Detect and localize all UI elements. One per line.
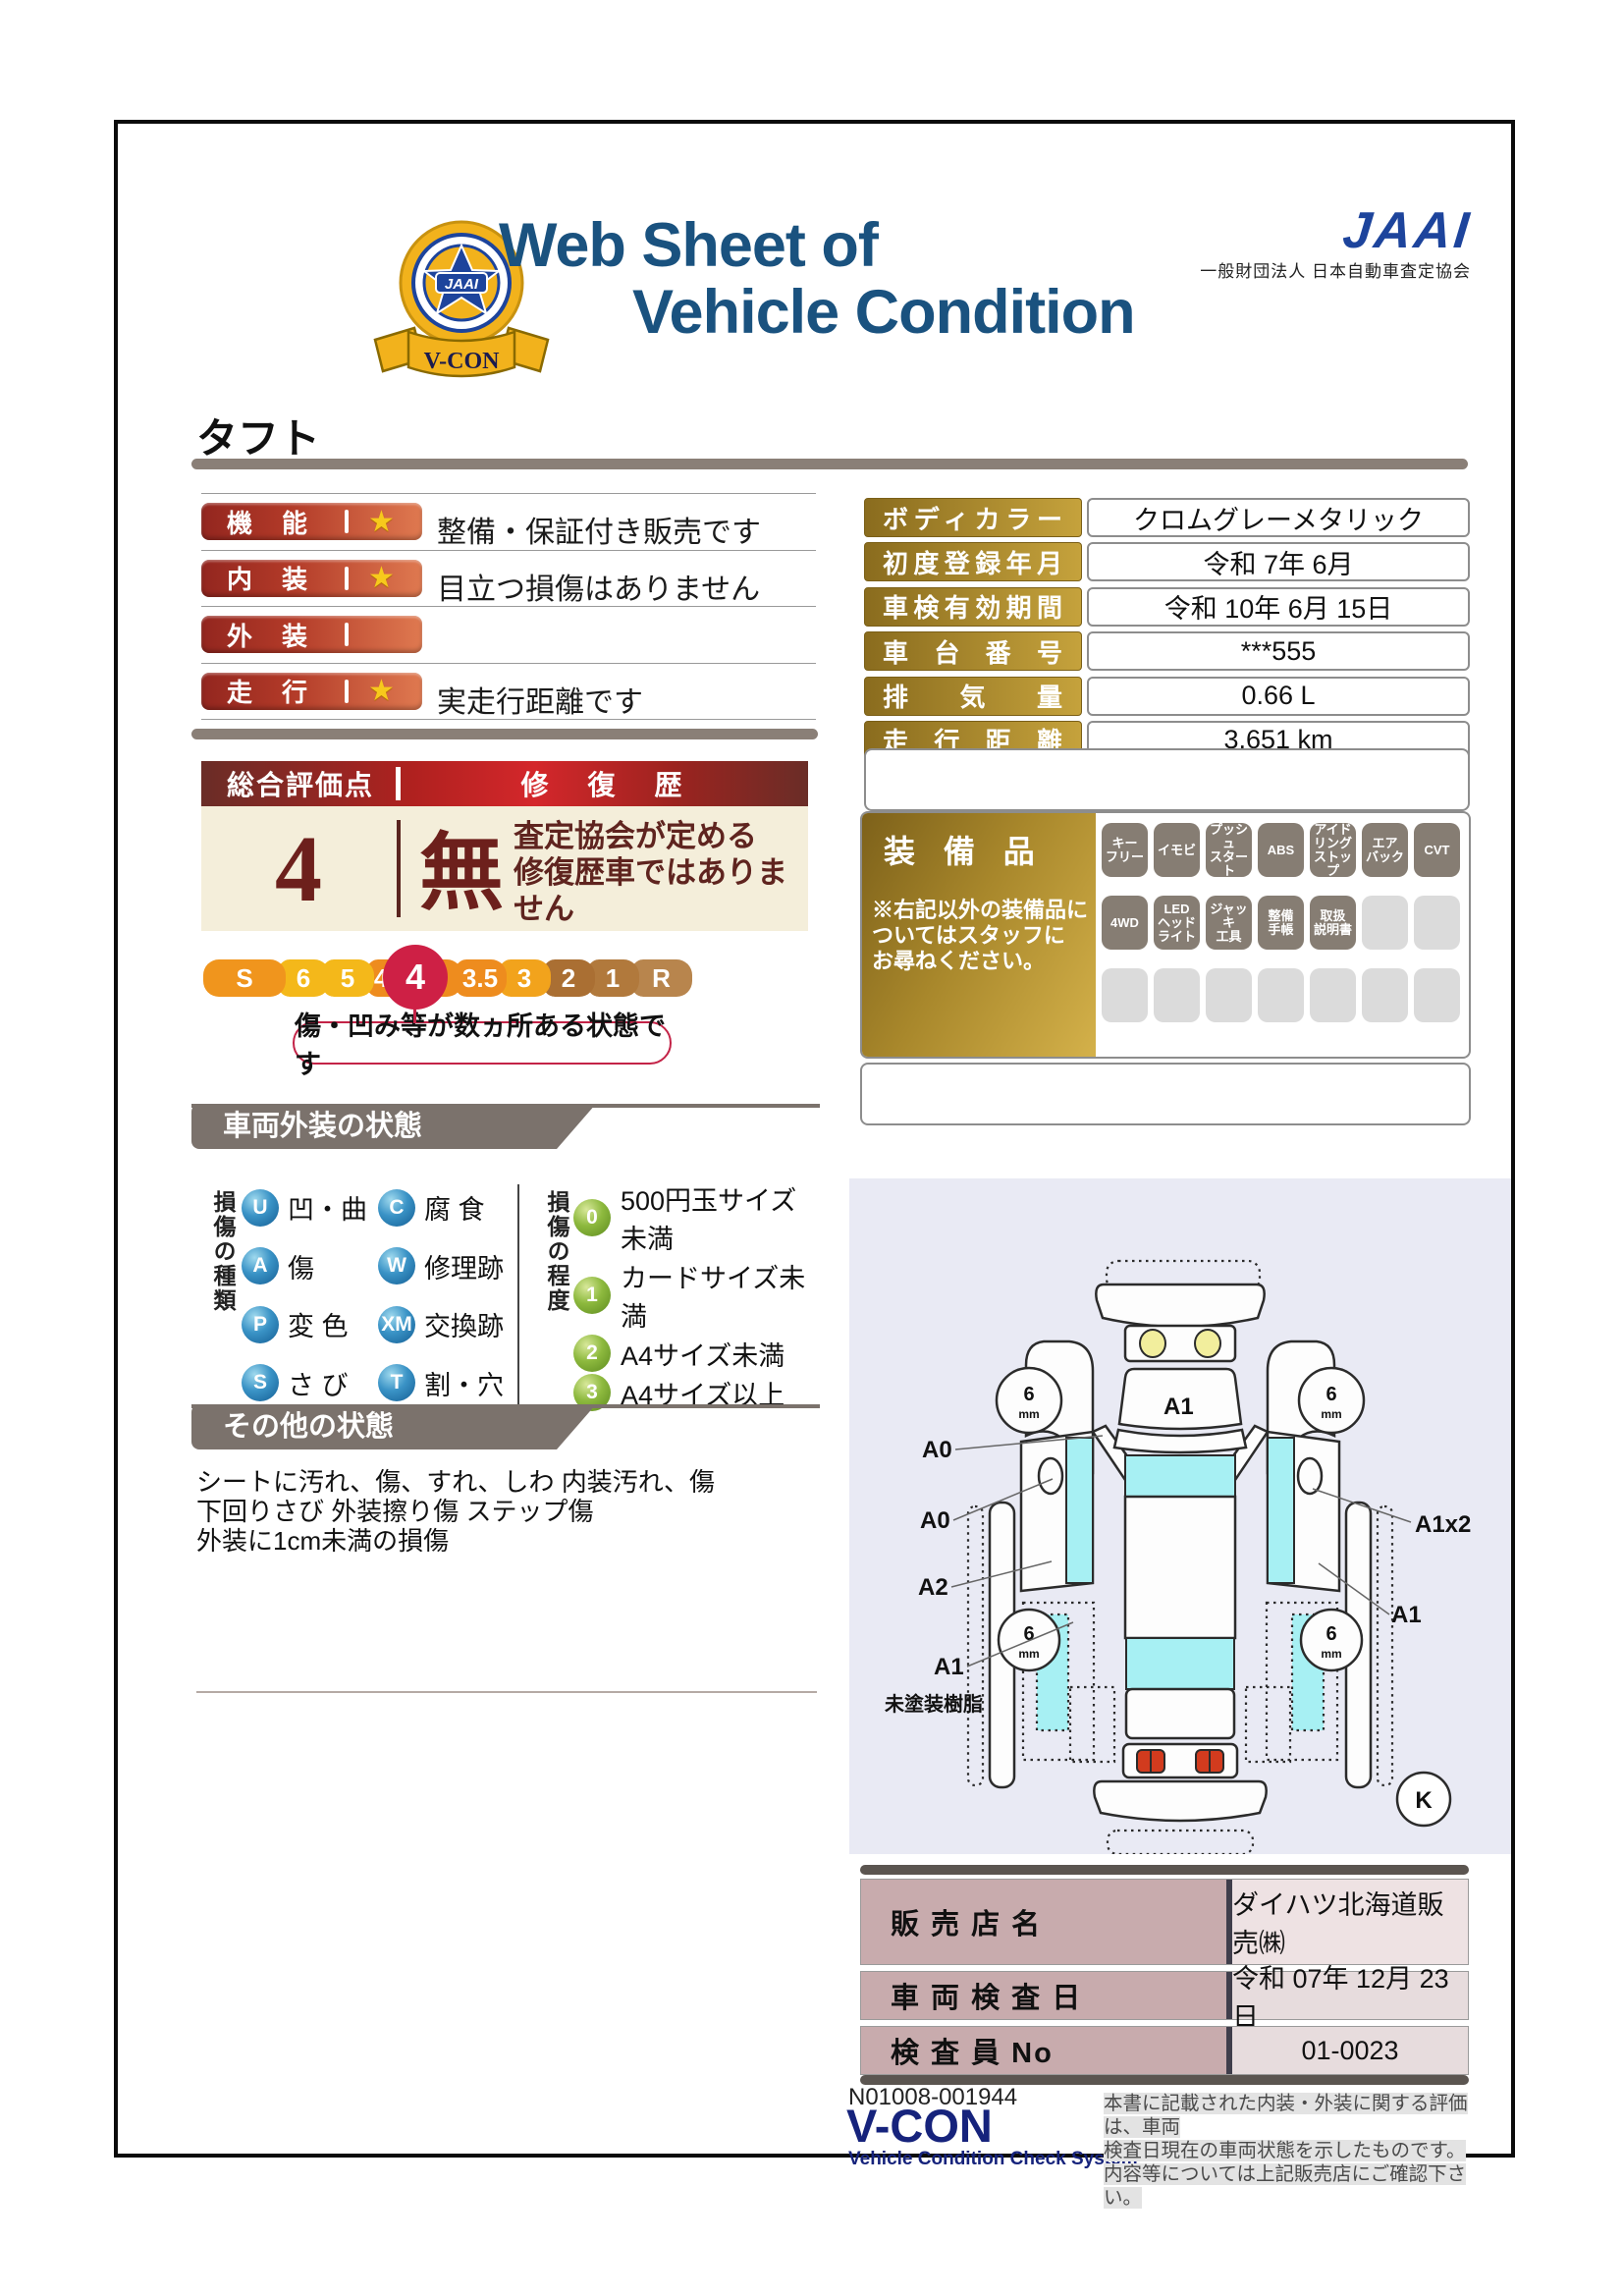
right-quarter-outline [1246, 1687, 1290, 1762]
equipment-badge: 4WD [1102, 896, 1148, 950]
equipment-badge: ジャッキ 工具 [1206, 896, 1252, 950]
rating-row: 内 装 ★ 目立つ損傷はありません [201, 550, 816, 607]
damage-label-a1-left: A1 [934, 1654, 964, 1680]
legend-item: 0 500円玉サイズ未満 [573, 1179, 819, 1256]
rating-row: 機 能 ★ 整備・保証付き販売です [201, 493, 816, 550]
right-mirror [1298, 1458, 1322, 1494]
score-header: 総合評価点 修 復 歴 [201, 761, 808, 806]
rating-note: 実走行距離です [437, 678, 643, 721]
detail-value: クロムグレーメタリック [1087, 498, 1470, 537]
other-condition-line: 外装に1cm未満の損傷 [196, 1526, 715, 1556]
rear-bumper [1094, 1781, 1266, 1821]
vcon-logo: V-CON [846, 2104, 993, 2149]
damage-code-label: 腐 食 [424, 1188, 485, 1227]
score-header-left: 総合評価点 [227, 764, 392, 803]
star-icon: ★ [368, 674, 395, 708]
equipment-badge [1362, 968, 1408, 1022]
scale-callout: 傷・凹み等が数ヵ所ある状態です [293, 1021, 672, 1065]
left-outer-sill [968, 1506, 983, 1785]
title-line1: Web Sheet of [499, 212, 1135, 279]
repair-mark: 無 [419, 824, 504, 922]
overall-score: 4 [201, 806, 396, 931]
svg-text:K: K [1415, 1787, 1433, 1814]
damage-code-icon: XM [378, 1306, 415, 1343]
front-left-wheel: 6 mm [997, 1368, 1061, 1433]
dealer-value: ダイハツ北海道販売㈱ [1232, 1880, 1468, 1964]
dealer-table-top-bar [860, 1865, 1469, 1875]
equipment-badge: プッシュ スタート [1206, 823, 1252, 877]
equipment-badge: イモビ [1154, 823, 1200, 877]
equipment-badge: キー フリー [1102, 823, 1148, 877]
damage-code-icon: W [378, 1247, 415, 1285]
right-pillar-glass [1268, 1438, 1294, 1583]
empty-field [860, 1063, 1471, 1125]
equipment-badge: CVT [1414, 823, 1460, 877]
damage-code-icon: U [242, 1189, 279, 1227]
front-bumper [1096, 1285, 1264, 1327]
rating-bar: 内 装 ★ [201, 560, 422, 597]
table-row: 販 売 店 名 ダイハツ北海道販売㈱ [860, 1879, 1469, 1965]
vehicle-details-table: ボディカラー クロムグレーメタリック 初度登録年月 令和 7年 6月 車検有効期… [864, 498, 1470, 760]
equipment-title: 装 備 品 [884, 827, 1096, 872]
svg-text:6: 6 [1325, 1623, 1336, 1645]
rating-divider [345, 680, 349, 703]
svg-text:mm: mm [1018, 1647, 1039, 1661]
degree-code-label: A4サイズ未満 [621, 1335, 784, 1373]
rear-panel [1126, 1689, 1234, 1738]
rear-right-wheel: 6 mm [1301, 1610, 1362, 1670]
table-row: 車検有効期間 令和 10年 6月 15日 [864, 587, 1470, 627]
badge-ribbon-text: V-CON [424, 349, 501, 374]
footer-note: 本書に記載された内装・外装に関する評価は、車両検査日現在の車両状態を示したもので… [1104, 2092, 1477, 2210]
star-icon: ★ [368, 561, 395, 595]
legend-item: W 修理跡 [378, 1237, 514, 1296]
legend-item: U 凹・曲 [242, 1178, 378, 1237]
detail-value: 令和 10年 6月 15日 [1087, 587, 1470, 627]
detail-label: 車検有効期間 [864, 587, 1082, 627]
damage-code-label: 割・穴 [424, 1364, 504, 1402]
repair-history: 無 査定協会が定める 修復歴車ではありません [419, 818, 808, 927]
damage-code-label: 凹・曲 [288, 1188, 367, 1227]
front-right-wheel: 6 mm [1299, 1368, 1364, 1433]
score-divider [397, 820, 401, 917]
rating-divider [345, 623, 349, 646]
dealer-value: 令和 07年 12月 23日 [1232, 1972, 1468, 2019]
vehicle-name: タフト [196, 406, 320, 465]
equipment-badge [1206, 968, 1252, 1022]
rating-label: 外 装 [227, 617, 327, 653]
windshield [1125, 1455, 1235, 1497]
table-row: 車 両 検 査 日 令和 07年 12月 23日 [860, 1971, 1469, 2020]
degree-code-icon: 2 [573, 1335, 611, 1372]
equipment-badge: 整備 手帳 [1258, 896, 1304, 950]
headlight-right-icon [1195, 1330, 1220, 1357]
scale-selected-score: 4 [383, 945, 448, 1010]
equipment-badge: ABS [1258, 823, 1304, 877]
vehicle-condition-sheet: JAAI V-CON Web Sheet of Vehicle Conditio… [0, 0, 1623, 2296]
hood-damage-label: A1 [1163, 1394, 1194, 1420]
damage-label-a1x2: A1x2 [1415, 1511, 1471, 1538]
scale-item: S [203, 959, 286, 997]
repair-note-line1: 査定協会が定める [514, 819, 757, 853]
rating-note: 整備・保証付き販売です [437, 508, 761, 551]
detail-value: ***555 [1087, 631, 1470, 671]
footer-note-line: 内容等については上記販売店にご確認下さい。 [1104, 2162, 1477, 2210]
left-pillar-glass [1066, 1438, 1093, 1583]
damage-degree-legend: 0 500円玉サイズ未満 1 カードサイズ未満 2 A4サイズ未満 3 A4サイ… [573, 1178, 819, 1412]
detail-label: 車 台 番 号 [864, 631, 1082, 671]
damage-kind-title: 損傷の種類 [206, 1190, 240, 1410]
inspection-corner-mark: K [1397, 1773, 1450, 1826]
damage-code-icon: A [242, 1247, 279, 1285]
rating-label: 走 行 [227, 673, 327, 709]
score-header-right: 修 復 歴 [401, 764, 808, 803]
detail-value: 0.66 L [1087, 677, 1470, 716]
legend-item: C 腐 食 [378, 1178, 514, 1237]
damage-label-a1-right: A1 [1391, 1602, 1422, 1628]
equipment-badge: 取扱 説明書 [1310, 896, 1356, 950]
table-row: 車 台 番 号 ***555 [864, 631, 1470, 671]
rating-bar: 走 行 ★ [201, 673, 422, 710]
exterior-section-banner: 車両外装の状態 [191, 1104, 596, 1149]
right-outer-sill [1378, 1506, 1392, 1785]
cowl [1114, 1430, 1246, 1452]
table-row: 検 査 員 No 01-0023 [860, 2026, 1469, 2075]
damage-code-label: 変 色 [288, 1305, 349, 1343]
equipment-box: 装 備 品 ※右記以外の装備品に ついてはスタッフに お尋ねください。 キー フ… [860, 811, 1471, 1059]
footer-note-line: 検査日現在の車両状態を示したものです。 [1104, 2139, 1477, 2162]
dealer-label: 販 売 店 名 [861, 1880, 1226, 1964]
jaai-logo: JAAI [1340, 206, 1474, 255]
rating-divider [345, 567, 349, 590]
empty-field [864, 748, 1470, 811]
detail-label: ボディカラー [864, 498, 1082, 537]
equipment-badge [1154, 968, 1200, 1022]
score-scale: S 6 5 4.5 4 3.5 3 2 1 R [203, 959, 692, 997]
roof [1125, 1497, 1235, 1638]
score-body: 4 無 査定協会が定める 修復歴車ではありません [201, 806, 808, 931]
rating-label: 機 能 [227, 504, 327, 540]
rating-row: 外 装 [201, 606, 816, 663]
scale-callout-stem [413, 1008, 416, 1023]
damage-code-label: 傷 [288, 1247, 314, 1285]
damage-kind-legend: U 凹・曲 C 腐 食 A 傷 W 修理跡 P 変 色 [242, 1178, 514, 1412]
jaai-organization: 一般財団法人 日本自動車査定協会 [1129, 257, 1471, 282]
rear-window [1126, 1638, 1234, 1689]
rating-note: 目立つ損傷はありません [437, 565, 760, 608]
svg-text:6: 6 [1325, 1384, 1336, 1405]
legend-divider [517, 1184, 519, 1404]
legend-item: P 変 色 [242, 1295, 378, 1354]
equipment-badge [1258, 968, 1304, 1022]
equipment-badge [1414, 896, 1460, 950]
equipment-badge [1310, 968, 1356, 1022]
rear-bumper-outline [1108, 1831, 1253, 1854]
headlight-left-icon [1140, 1330, 1165, 1357]
left-mirror [1039, 1458, 1062, 1494]
star-icon: ★ [368, 505, 395, 539]
damage-label-a0-1: A0 [922, 1437, 952, 1463]
damage-code-icon: S [242, 1364, 279, 1401]
repair-note-line2: 修復歴車ではありません [514, 855, 787, 926]
unpainted-resin-label: 未塗装樹脂 [885, 1692, 983, 1716]
equipment-badge-grid: キー フリー イモビ プッシュ スタート ABS アイド リング ストップ エア… [1102, 823, 1465, 1022]
legend-item: 1 カードサイズ未満 [573, 1257, 819, 1334]
degree-code-label: カードサイズ未満 [621, 1257, 819, 1334]
left-quarter-outline [1070, 1687, 1114, 1762]
equipment-badge: エア バック [1362, 823, 1408, 877]
degree-code-label: 500円玉サイズ未満 [621, 1179, 819, 1256]
degree-code-icon: 0 [573, 1199, 611, 1236]
legend-item: A 傷 [242, 1237, 378, 1296]
badge-jaai-text: JAAI [445, 276, 479, 293]
equipment-badge: LED ヘッド ライト [1154, 896, 1200, 950]
rating-bar: 機 能 ★ [201, 503, 422, 540]
detail-value: 令和 7年 6月 [1087, 542, 1470, 581]
car-damage-diagram: 6 mm 6 mm 6 mm 6 mm A1 A0 A0 A2 A1 未塗装樹脂… [849, 1178, 1511, 1854]
detail-label: 初度登録年月 [864, 542, 1082, 581]
table-row: 排 気 量 0.66 L [864, 677, 1470, 716]
damage-code-icon: P [242, 1306, 279, 1343]
divider-line [196, 1691, 817, 1693]
damage-code-icon: C [378, 1189, 415, 1227]
legend-item: XM 交換跡 [378, 1295, 514, 1354]
damage-code-label: 交換跡 [424, 1305, 504, 1343]
equipment-badge [1414, 968, 1460, 1022]
other-condition-text: シートに汚れ、傷、すれ、しわ 内装汚れ、傷下回りさび 外装擦り傷 ステップ傷外装… [196, 1467, 715, 1556]
detail-label: 排 気 量 [864, 677, 1082, 716]
damage-label-a2: A2 [918, 1574, 948, 1601]
dealer-label: 検 査 員 No [861, 2027, 1226, 2074]
other-condition-line: 下回りさび 外装擦り傷 ステップ傷 [196, 1497, 715, 1526]
damage-label-a0-2: A0 [920, 1507, 950, 1534]
rating-label: 内 装 [227, 560, 327, 596]
equipment-badge [1102, 968, 1148, 1022]
degree-code-icon: 1 [573, 1277, 611, 1314]
equipment-note: ※右記以外の装備品に ついてはスタッフに お尋ねください。 [872, 898, 1096, 974]
svg-text:mm: mm [1018, 1407, 1039, 1421]
damage-code-label: さ び [288, 1364, 349, 1402]
rating-bar: 外 装 [201, 616, 422, 653]
divider [191, 459, 1468, 469]
dealer-value: 01-0023 [1232, 2027, 1468, 2074]
equipment-panel: 装 備 品 ※右記以外の装備品に ついてはスタッフに お尋ねください。 [862, 813, 1096, 1057]
svg-text:6: 6 [1023, 1384, 1034, 1405]
damage-code-label: 修理跡 [424, 1247, 504, 1285]
equipment-badge: アイド リング ストップ [1310, 823, 1356, 877]
dealer-label: 車 両 検 査 日 [861, 1972, 1226, 2019]
rating-list: 機 能 ★ 整備・保証付き販売です 内 装 ★ 目立つ損傷はありません 外 装 [201, 493, 816, 720]
svg-text:mm: mm [1321, 1407, 1341, 1421]
table-row: ボディカラー クロムグレーメタリック [864, 498, 1470, 537]
dealer-table: 販 売 店 名 ダイハツ北海道販売㈱ 車 両 検 査 日 令和 07年 12月 … [860, 1879, 1469, 2075]
damage-code-icon: T [378, 1364, 415, 1401]
rating-divider [345, 510, 349, 533]
jaai-logo-block: JAAI 一般財団法人 日本自動車査定協会 [1129, 206, 1471, 282]
page-title: Web Sheet of Vehicle Condition [499, 212, 1135, 346]
other-section-banner: その他の状態 [191, 1404, 596, 1449]
divider [191, 729, 818, 739]
other-condition-line: シートに汚れ、傷、すれ、しわ 内装汚れ、傷 [196, 1467, 715, 1497]
table-row: 初度登録年月 令和 7年 6月 [864, 542, 1470, 581]
svg-text:mm: mm [1321, 1647, 1341, 1661]
equipment-badge [1362, 896, 1408, 950]
rating-row: 走 行 ★ 実走行距離です [201, 663, 816, 720]
legend-item: 2 A4サイズ未満 [573, 1335, 819, 1373]
vcon-subtitle: Vehicle Condition Check System [848, 2149, 1138, 2170]
title-line2: Vehicle Condition [632, 279, 1135, 346]
repair-note: 査定協会が定める 修復歴車ではありません [514, 818, 808, 927]
damage-degree-title: 損傷の程度 [540, 1190, 573, 1410]
footer-note-line: 本書に記載された内装・外装に関する評価は、車両 [1104, 2092, 1477, 2139]
